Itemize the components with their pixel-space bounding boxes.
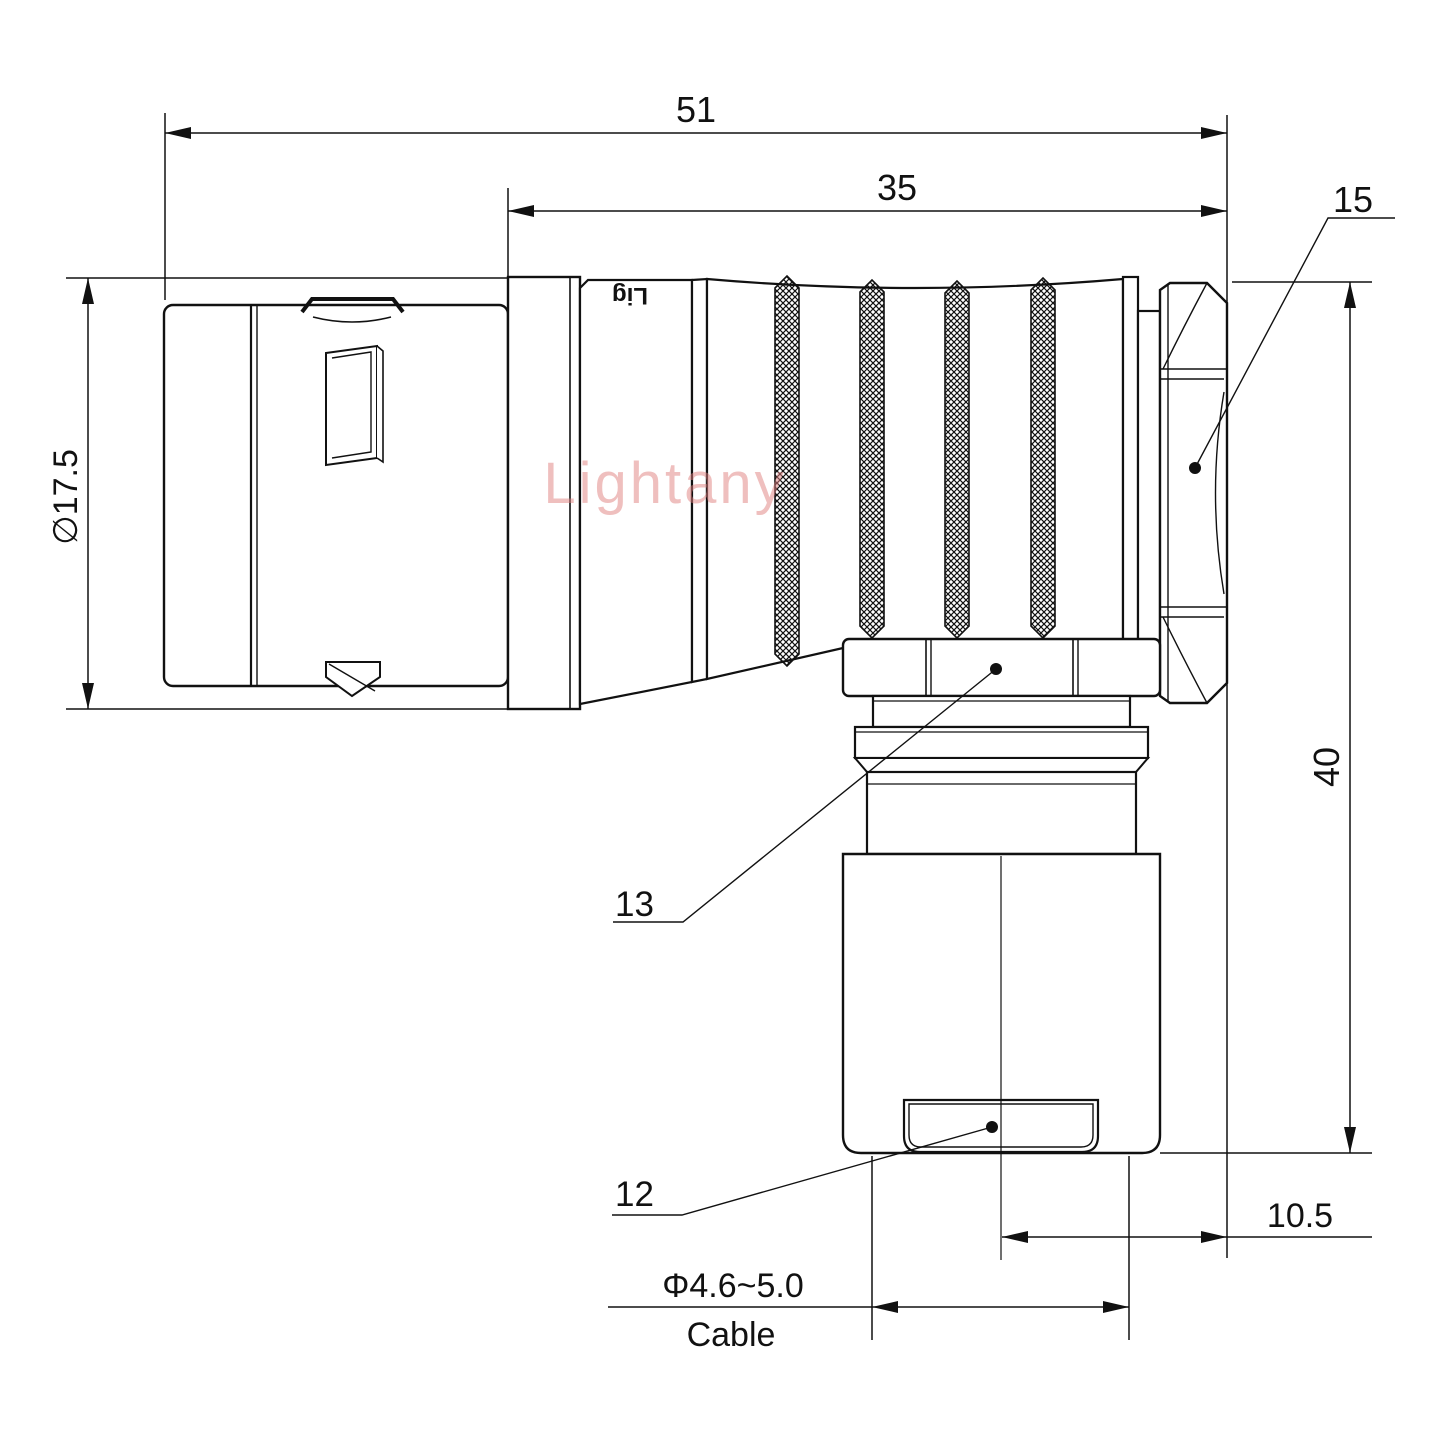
taper-shoulder bbox=[855, 758, 1148, 772]
watermark-text: Lightany bbox=[543, 451, 786, 516]
step-ring bbox=[1138, 311, 1160, 678]
knurl-band bbox=[945, 281, 969, 638]
front-shell bbox=[164, 299, 508, 696]
dim-text-cable-diameter: Φ4.6~5.0 bbox=[662, 1267, 804, 1305]
latch-hook bbox=[326, 662, 380, 696]
part-label-back-nut: 15 bbox=[1333, 179, 1373, 220]
drawing-page: Lig Lightany 51 bbox=[0, 0, 1440, 1440]
flange-ring bbox=[855, 727, 1148, 758]
dim-text-cable-label: Cable bbox=[687, 1316, 776, 1354]
body-engraving-text: Lig bbox=[612, 282, 648, 309]
neck-ring bbox=[873, 696, 1130, 727]
part-label-cable-cap: 12 bbox=[615, 1175, 654, 1214]
elbow-vertical-leg bbox=[843, 639, 1160, 1260]
technical-drawing-canvas: Lig Lightany 51 bbox=[0, 0, 1440, 1440]
end-plate bbox=[1123, 277, 1138, 688]
leader-dot-13 bbox=[990, 663, 1002, 675]
dim-text-height: 40 bbox=[1306, 747, 1347, 787]
dim-text-overall-length: 51 bbox=[676, 89, 716, 130]
knurl-band bbox=[860, 280, 884, 638]
leader-dot-15 bbox=[1189, 462, 1201, 474]
cylinder-section bbox=[867, 772, 1136, 854]
leader-dot-12 bbox=[986, 1121, 998, 1133]
dim-text-front-diameter: ∅17.5 bbox=[47, 449, 85, 545]
dim-text-body-length: 35 bbox=[877, 167, 917, 208]
back-hex-nut bbox=[1160, 283, 1227, 703]
part-label-coupling-nut: 13 bbox=[615, 885, 654, 924]
knurl-band bbox=[1031, 278, 1055, 638]
dim-text-axis-offset: 10.5 bbox=[1267, 1197, 1333, 1235]
latch-window bbox=[326, 346, 383, 465]
